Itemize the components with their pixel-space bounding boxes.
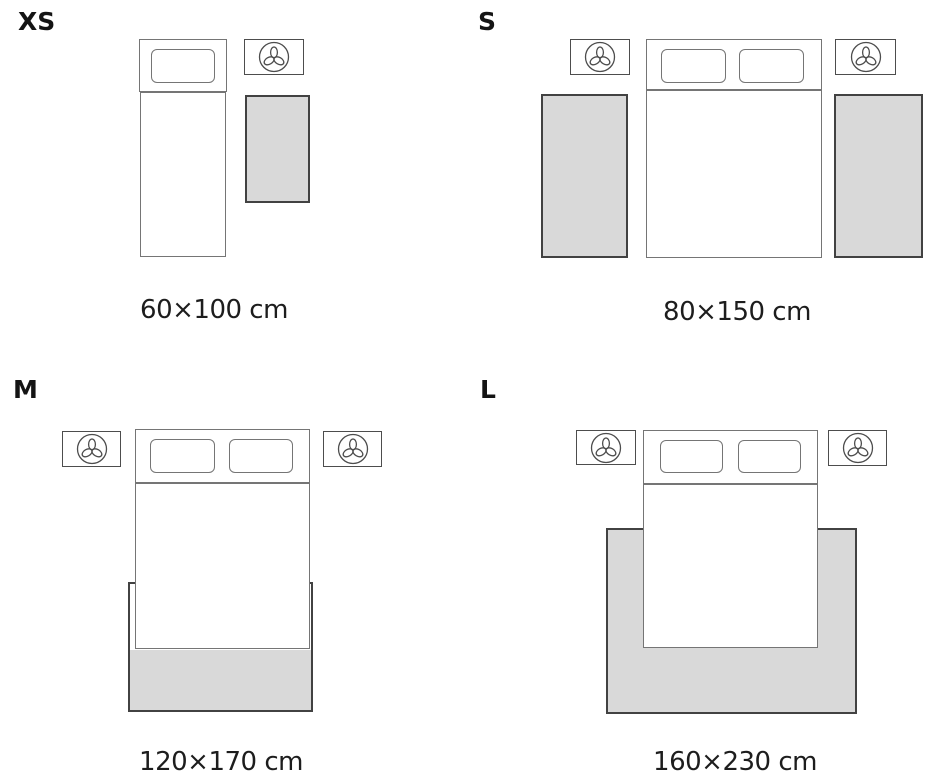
nightstand [570,39,630,75]
bed-body-xs [140,92,226,257]
size-m-label: M [13,378,38,402]
pillow [150,439,215,473]
size-xs-label: XS [18,10,55,34]
pillow [739,49,804,83]
pillow [151,49,215,83]
rug-size-guide: XS 60×100 cm S [0,0,940,780]
nightstand [835,39,896,75]
nightstand [323,431,382,467]
pillow [229,439,293,473]
bed-body-s [646,90,822,258]
pillow [660,440,723,473]
rug-xs [245,95,310,203]
rug-s-left [541,94,628,258]
bed-body-l [643,484,818,648]
nightstand [62,431,121,467]
size-s-dimensions: 80×150 cm [607,298,867,326]
lamp-top-view-icon [336,433,370,465]
size-l-dimensions: 160×230 cm [605,748,865,776]
size-xs-dimensions: 60×100 cm [84,296,344,324]
lamp-top-view-icon [849,41,883,73]
nightstand [828,430,887,466]
pillow [661,49,726,83]
size-s-label: S [478,10,496,34]
nightstand [244,39,304,75]
pillow [738,440,801,473]
lamp-top-view-icon [257,41,291,73]
size-l-label: L [480,378,496,402]
nightstand [576,430,636,465]
lamp-top-view-icon [841,432,875,464]
rug-s-right [834,94,923,258]
lamp-top-view-icon [75,433,109,465]
lamp-top-view-icon [589,432,623,464]
rug-m-exposed-area [130,650,311,710]
bed-body-m [135,483,310,649]
lamp-top-view-icon [583,41,617,73]
size-m-dimensions: 120×170 cm [91,748,351,776]
